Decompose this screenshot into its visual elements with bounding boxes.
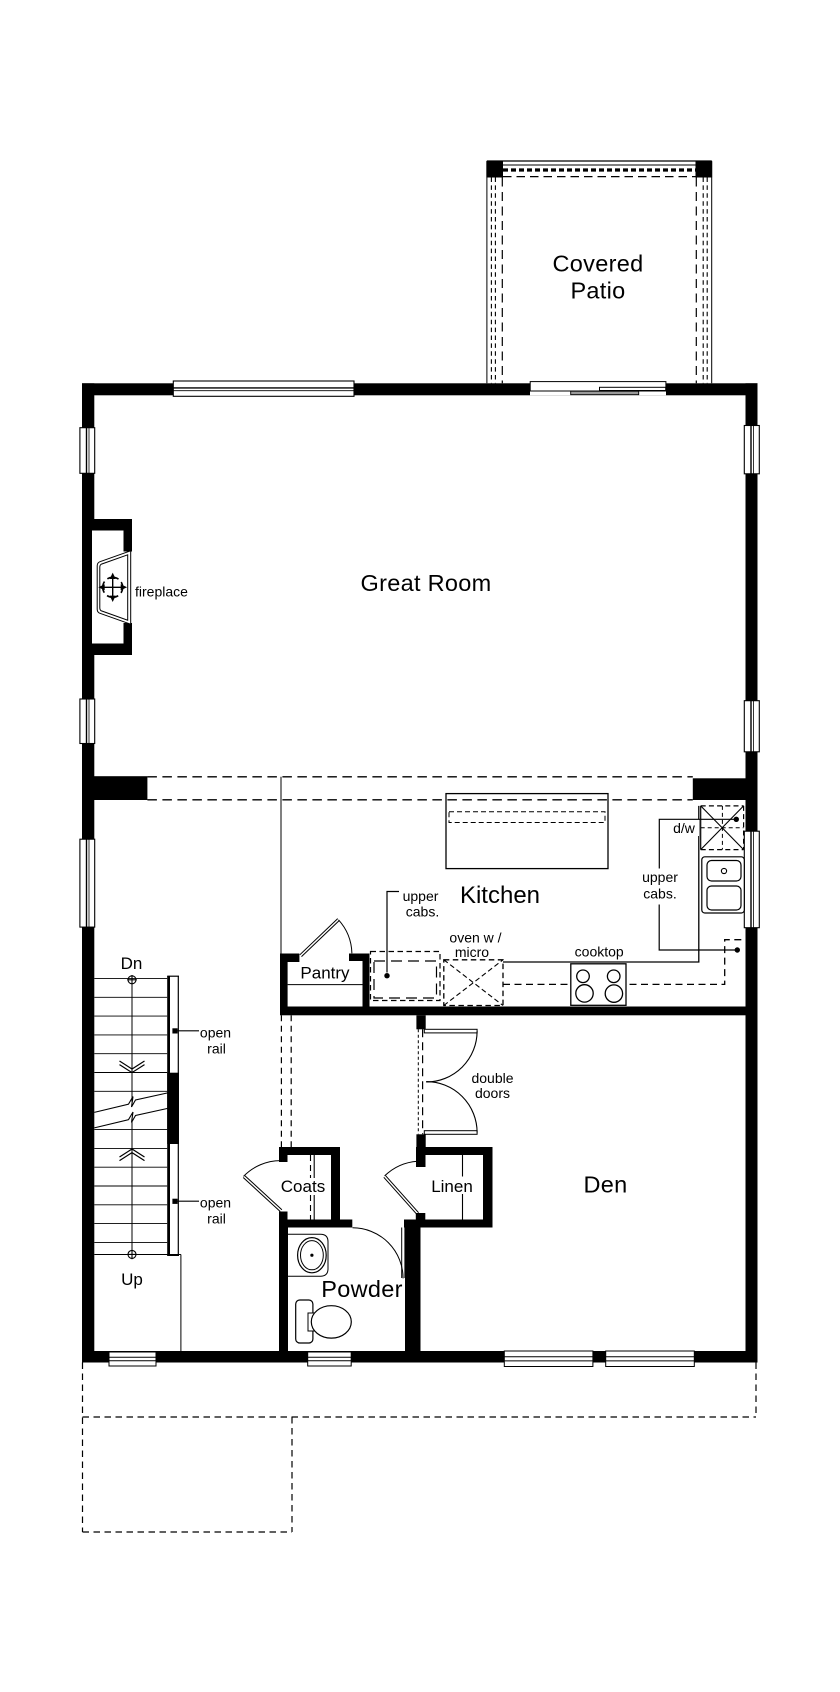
svg-text:Up: Up: [121, 1270, 143, 1289]
svg-text:double: double: [471, 1070, 513, 1086]
svg-text:upper: upper: [642, 869, 678, 885]
svg-text:Pantry: Pantry: [300, 964, 350, 983]
svg-text:Patio: Patio: [570, 278, 625, 304]
svg-text:Covered: Covered: [553, 251, 644, 277]
svg-text:cooktop: cooktop: [575, 943, 624, 959]
svg-text:Kitchen: Kitchen: [460, 882, 540, 909]
svg-text:d/w: d/w: [673, 820, 696, 836]
svg-text:open: open: [200, 1195, 231, 1211]
svg-text:Den: Den: [583, 1172, 627, 1198]
svg-text:cabs.: cabs.: [406, 904, 439, 920]
svg-text:Coats: Coats: [281, 1177, 325, 1196]
svg-text:Great Room: Great Room: [361, 570, 492, 596]
svg-text:upper: upper: [403, 888, 439, 904]
svg-text:rail: rail: [207, 1211, 226, 1227]
svg-text:Powder: Powder: [321, 1276, 402, 1302]
svg-text:rail: rail: [207, 1040, 226, 1056]
svg-text:doors: doors: [475, 1085, 510, 1101]
svg-text:fireplace: fireplace: [135, 584, 188, 600]
svg-text:cabs.: cabs.: [643, 885, 676, 901]
svg-text:Linen: Linen: [431, 1177, 473, 1196]
svg-text:micro: micro: [455, 944, 489, 960]
svg-text:Dn: Dn: [121, 954, 143, 973]
svg-text:open: open: [200, 1024, 231, 1040]
